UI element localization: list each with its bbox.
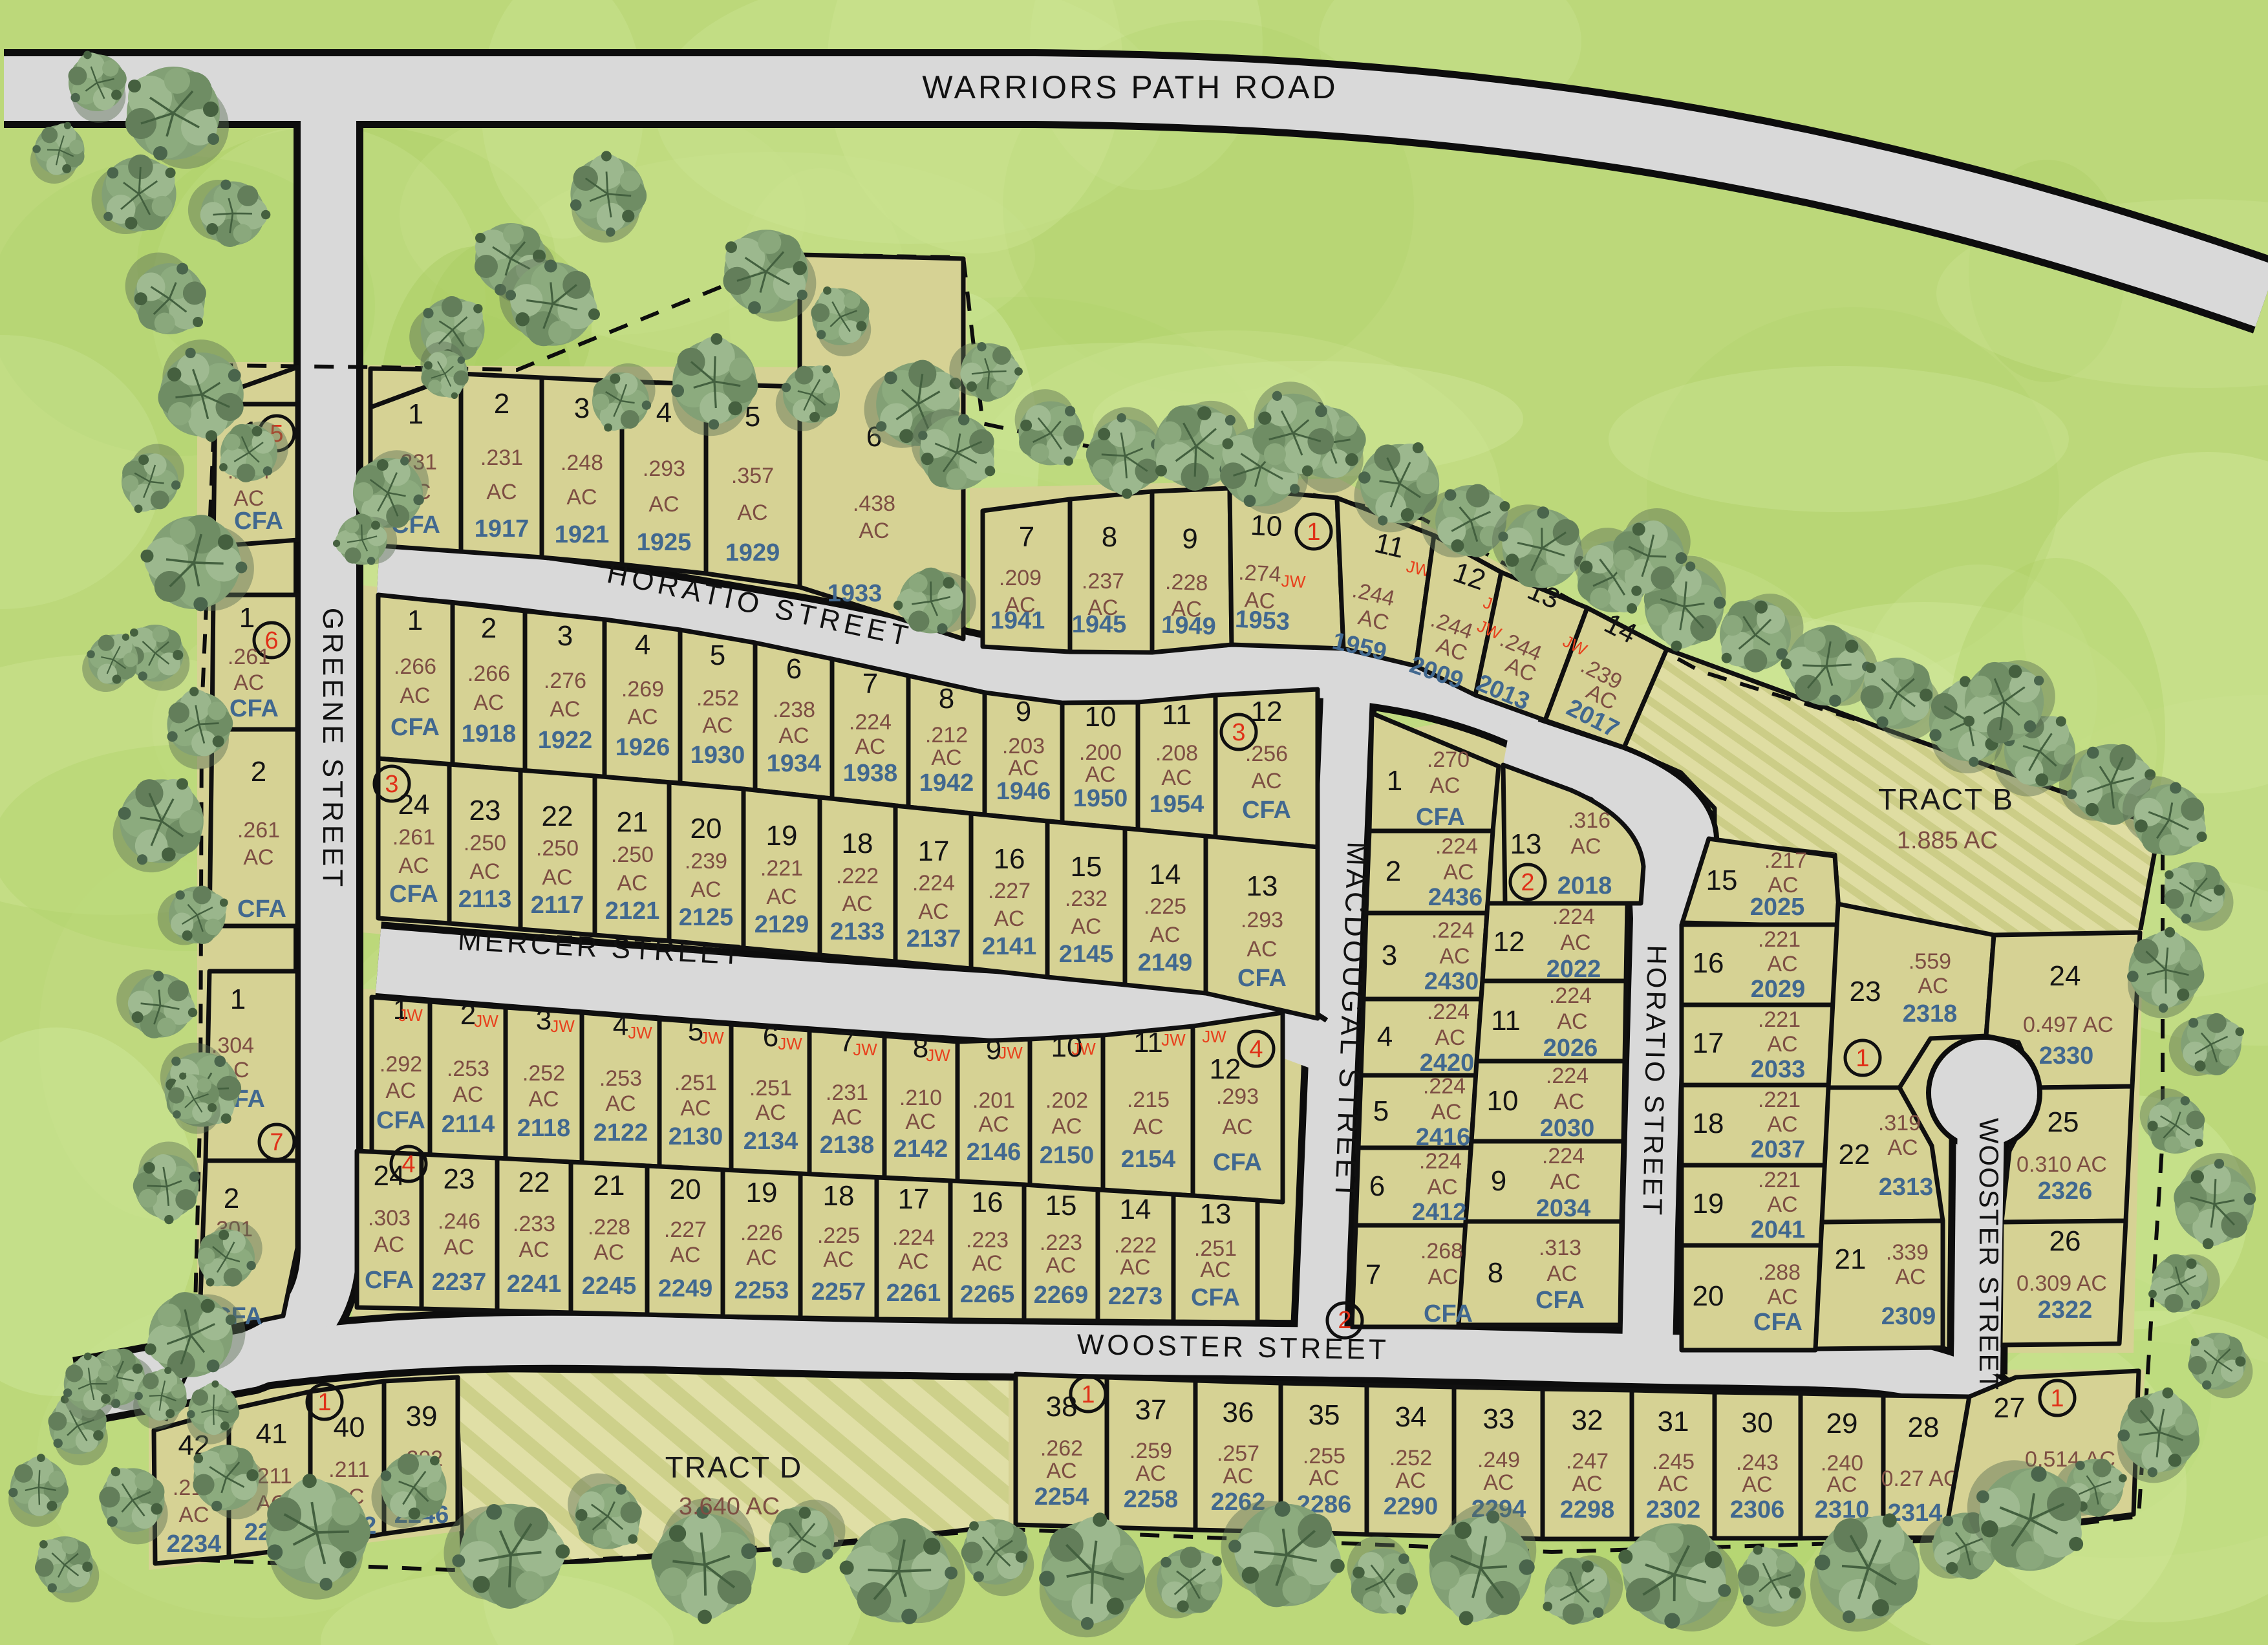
svg-text:9: 9	[1491, 1165, 1506, 1197]
svg-text:AC: AC	[627, 705, 658, 729]
svg-text:.270: .270	[1427, 747, 1470, 772]
svg-text:7: 7	[270, 1129, 283, 1156]
svg-text:.221: .221	[1758, 1168, 1801, 1192]
svg-text:AC: AC	[1546, 1262, 1577, 1286]
svg-text:AC: AC	[1429, 773, 1460, 798]
svg-text:WOOSTER STREET: WOOSTER STREET	[1974, 1118, 2004, 1391]
svg-text:AC: AC	[746, 1245, 776, 1270]
svg-text:2145: 2145	[1059, 941, 1114, 968]
svg-text:15: 15	[1045, 1190, 1077, 1221]
svg-text:0.497 AC: 0.497 AC	[2023, 1013, 2113, 1037]
svg-text:AC: AC	[702, 713, 733, 738]
svg-text:AC: AC	[1133, 1115, 1163, 1139]
svg-text:.237: .237	[1082, 569, 1124, 594]
svg-text:AC: AC	[1431, 1100, 1461, 1124]
svg-text:1925: 1925	[637, 529, 692, 556]
svg-text:AC: AC	[617, 871, 647, 896]
svg-text:7: 7	[1365, 1259, 1381, 1291]
svg-text:22: 22	[1839, 1139, 1870, 1170]
svg-text:1933: 1933	[828, 580, 883, 607]
svg-text:27: 27	[1994, 1392, 2026, 1424]
svg-text:11: 11	[1133, 1027, 1163, 1059]
svg-text:38: 38	[1046, 1391, 1078, 1423]
svg-text:.266: .266	[467, 661, 510, 686]
svg-text:1929: 1929	[725, 539, 780, 566]
svg-text:AC: AC	[1554, 1090, 1584, 1114]
svg-text:0.310 AC: 0.310 AC	[2017, 1152, 2107, 1177]
svg-text:AC: AC	[1046, 1459, 1076, 1483]
svg-text:2: 2	[224, 1183, 239, 1214]
svg-text:13: 13	[1510, 828, 1542, 860]
svg-text:4: 4	[401, 1151, 415, 1178]
svg-text:.276: .276	[544, 669, 586, 693]
svg-text:29: 29	[1826, 1408, 1858, 1439]
svg-text:AC: AC	[1309, 1466, 1339, 1490]
svg-text:.268: .268	[1420, 1239, 1463, 1263]
svg-text:.224: .224	[892, 1225, 935, 1250]
svg-text:2273: 2273	[1108, 1283, 1163, 1310]
svg-text:2: 2	[251, 756, 266, 788]
svg-text:2142: 2142	[893, 1135, 948, 1163]
svg-text:2134: 2134	[744, 1128, 798, 1155]
svg-text:AC: AC	[1428, 1265, 1458, 1289]
svg-text:AC: AC	[1427, 1175, 1457, 1199]
svg-text:JW: JW	[1071, 1039, 1096, 1059]
svg-text:AC: AC	[1150, 923, 1180, 947]
svg-text:13: 13	[1246, 870, 1278, 902]
svg-text:AC: AC	[994, 907, 1024, 931]
svg-text:CFA: CFA	[1242, 797, 1291, 824]
svg-text:2253: 2253	[734, 1277, 789, 1304]
svg-text:16: 16	[972, 1187, 1003, 1218]
svg-text:2306: 2306	[1730, 1496, 1785, 1523]
svg-text:2130: 2130	[669, 1123, 723, 1150]
svg-text:2420: 2420	[1420, 1049, 1475, 1077]
svg-text:.224: .224	[849, 710, 892, 735]
svg-text:AC: AC	[1395, 1468, 1426, 1493]
svg-text:2430: 2430	[1424, 968, 1479, 995]
svg-text:.250: .250	[536, 836, 579, 861]
svg-text:AC: AC	[978, 1112, 1009, 1137]
svg-text:.224: .224	[1435, 834, 1478, 859]
svg-text:2125: 2125	[679, 904, 734, 931]
svg-text:12: 12	[1251, 696, 1283, 727]
svg-text:2114: 2114	[442, 1111, 495, 1138]
svg-text:2117: 2117	[531, 892, 584, 919]
svg-text:.246: .246	[438, 1209, 480, 1234]
svg-text:CFA: CFA	[234, 508, 283, 535]
svg-text:JW: JW	[474, 1011, 498, 1031]
svg-text:AC: AC	[931, 746, 961, 770]
svg-text:.233: .233	[513, 1212, 555, 1236]
svg-text:HORATIO STREET: HORATIO STREET	[1637, 945, 1672, 1218]
svg-text:37: 37	[1135, 1394, 1167, 1426]
svg-text:AC: AC	[918, 899, 948, 924]
svg-text:2: 2	[494, 388, 509, 420]
svg-text:CFA: CFA	[390, 714, 440, 741]
svg-text:.224: .224	[1431, 918, 1474, 943]
svg-text:2141: 2141	[982, 933, 1037, 960]
svg-text:AC: AC	[1918, 974, 1948, 998]
svg-text:AC: AC	[778, 724, 809, 748]
svg-text:2122: 2122	[594, 1119, 648, 1146]
svg-text:3: 3	[385, 771, 398, 798]
svg-text:11: 11	[1162, 699, 1192, 731]
svg-text:CFA: CFA	[1753, 1309, 1803, 1336]
svg-text:.208: .208	[1155, 741, 1198, 766]
svg-text:JW: JW	[1202, 1027, 1226, 1046]
svg-text:26: 26	[2049, 1225, 2081, 1257]
svg-text:.225: .225	[1144, 894, 1186, 919]
svg-text:4: 4	[1377, 1021, 1393, 1053]
svg-text:.228: .228	[588, 1215, 630, 1240]
svg-text:AC: AC	[444, 1235, 474, 1260]
svg-text:AC: AC	[1767, 1112, 1797, 1137]
svg-text:12: 12	[1493, 926, 1525, 958]
svg-text:19: 19	[746, 1177, 778, 1209]
svg-text:16: 16	[994, 843, 1025, 875]
svg-text:AC: AC	[670, 1243, 700, 1267]
svg-text:9: 9	[1181, 523, 1198, 555]
svg-text:CFA: CFA	[1535, 1287, 1585, 1314]
svg-text:CFA: CFA	[1191, 1284, 1240, 1311]
svg-text:AC: AC	[755, 1101, 786, 1125]
svg-text:AC: AC	[1767, 1032, 1797, 1057]
svg-text:1949: 1949	[1161, 612, 1216, 641]
svg-text:2: 2	[1521, 869, 1534, 896]
svg-text:AC: AC	[374, 1232, 404, 1257]
svg-text:AC: AC	[1120, 1255, 1150, 1280]
svg-text:3: 3	[1232, 719, 1245, 746]
svg-text:.200: .200	[1079, 740, 1122, 765]
svg-text:15: 15	[1706, 865, 1738, 896]
svg-text:2041: 2041	[1751, 1216, 1806, 1243]
svg-text:CFA: CFA	[1424, 1300, 1473, 1328]
svg-text:23: 23	[1850, 976, 1881, 1007]
svg-text:3: 3	[1382, 940, 1397, 971]
svg-text:.249: .249	[1477, 1448, 1520, 1472]
svg-text:AC: AC	[469, 859, 500, 884]
svg-text:4: 4	[635, 629, 650, 661]
svg-text:34: 34	[1395, 1401, 1427, 1433]
svg-text:JW: JW	[1161, 1030, 1186, 1049]
svg-text:AC: AC	[831, 1105, 862, 1130]
svg-text:AC: AC	[905, 1110, 936, 1134]
svg-text:.223: .223	[966, 1228, 1009, 1253]
svg-text:.203: .203	[1002, 734, 1045, 758]
svg-text:2121: 2121	[605, 898, 660, 925]
svg-text:2412: 2412	[1412, 1199, 1467, 1226]
svg-text:1: 1	[230, 984, 246, 1015]
svg-text:2150: 2150	[1040, 1142, 1095, 1169]
svg-text:AC: AC	[1895, 1265, 1925, 1289]
svg-text:.231: .231	[480, 446, 523, 470]
svg-text:24: 24	[374, 1160, 405, 1192]
svg-text:AC: AC	[550, 697, 580, 722]
svg-text:AC: AC	[486, 480, 517, 504]
svg-text:.262: .262	[1040, 1436, 1083, 1461]
svg-text:8: 8	[1488, 1257, 1503, 1289]
svg-text:AC: AC	[690, 877, 721, 902]
svg-text:.292: .292	[380, 1052, 422, 1077]
svg-text:AC: AC	[542, 865, 572, 890]
svg-text:CFA: CFA	[389, 881, 438, 908]
svg-text:2018: 2018	[1557, 872, 1612, 899]
svg-text:1: 1	[239, 602, 255, 634]
svg-text:.357: .357	[731, 464, 774, 488]
svg-text:AC: AC	[1161, 766, 1192, 790]
svg-text:18: 18	[842, 828, 873, 859]
svg-text:17: 17	[1693, 1027, 1724, 1059]
svg-text:2269: 2269	[1034, 1282, 1089, 1309]
svg-text:2034: 2034	[1536, 1195, 1591, 1222]
svg-text:.231: .231	[826, 1081, 868, 1105]
svg-text:21: 21	[594, 1170, 625, 1201]
svg-text:CFA: CFA	[376, 1107, 425, 1134]
svg-text:GREENE STREET: GREENE STREET	[317, 608, 348, 890]
svg-text:.227: .227	[664, 1218, 707, 1242]
svg-text:32: 32	[1572, 1404, 1603, 1436]
svg-text:1: 1	[317, 1389, 331, 1416]
svg-text:2129: 2129	[754, 911, 809, 938]
svg-text:.250: .250	[611, 843, 654, 867]
svg-text:AC: AC	[566, 485, 597, 510]
svg-text:.221: .221	[760, 856, 803, 881]
svg-text:.226: .226	[740, 1221, 783, 1245]
svg-text:AC: AC	[1051, 1114, 1082, 1139]
svg-text:24: 24	[2049, 960, 2081, 992]
svg-text:.221: .221	[1758, 927, 1801, 952]
svg-text:AC: AC	[243, 845, 273, 870]
svg-text:10: 10	[1085, 701, 1117, 733]
svg-text:.223: .223	[1040, 1231, 1082, 1255]
svg-text:.313: .313	[1539, 1236, 1581, 1260]
svg-text:AC: AC	[528, 1087, 559, 1112]
svg-text:AC: AC	[855, 735, 885, 759]
svg-text:2302: 2302	[1646, 1496, 1701, 1523]
svg-text:1918: 1918	[462, 720, 517, 747]
svg-text:AC: AC	[1135, 1461, 1166, 1486]
svg-text:CFA: CFA	[1237, 965, 1287, 992]
svg-text:AC: AC	[1572, 1472, 1602, 1496]
svg-text:3: 3	[557, 620, 573, 652]
svg-text:4: 4	[1249, 1036, 1263, 1063]
svg-text:AC: AC	[1246, 937, 1277, 962]
svg-text:2265: 2265	[960, 1281, 1015, 1308]
svg-text:AC: AC	[1071, 914, 1101, 939]
svg-text:.274: .274	[1238, 560, 1282, 586]
svg-text:7: 7	[862, 668, 878, 700]
svg-text:AC: AC	[859, 519, 889, 543]
svg-text:10: 10	[1250, 510, 1283, 543]
svg-text:AC: AC	[1826, 1472, 1857, 1497]
svg-text:2313: 2313	[1879, 1174, 1934, 1201]
svg-text:2113: 2113	[458, 886, 511, 913]
svg-text:17: 17	[898, 1183, 930, 1215]
svg-text:.224: .224	[1423, 1074, 1466, 1099]
svg-text:2118: 2118	[517, 1115, 570, 1142]
svg-text:TRACT D: TRACT D	[665, 1450, 803, 1484]
svg-text:21: 21	[617, 806, 648, 838]
svg-text:1946: 1946	[996, 778, 1051, 805]
svg-text:.201: .201	[972, 1088, 1015, 1113]
svg-text:2309: 2309	[1881, 1303, 1936, 1330]
svg-text:2258: 2258	[1124, 1486, 1179, 1513]
svg-text:.228: .228	[1165, 570, 1208, 596]
svg-text:22: 22	[519, 1167, 550, 1198]
svg-text:JW: JW	[398, 1005, 423, 1025]
svg-text:2029: 2029	[1751, 976, 1806, 1003]
svg-text:2137: 2137	[906, 925, 961, 952]
svg-text:1921: 1921	[555, 521, 610, 548]
svg-text:2245: 2245	[582, 1273, 637, 1300]
svg-text:AC: AC	[453, 1082, 483, 1107]
svg-text:2298: 2298	[1560, 1496, 1615, 1523]
svg-text:1.885 AC: 1.885 AC	[1897, 827, 1998, 854]
svg-text:41: 41	[256, 1418, 288, 1450]
svg-text:.251: .251	[674, 1071, 717, 1095]
svg-text:.293: .293	[1241, 908, 1283, 932]
svg-text:AC: AC	[766, 885, 797, 909]
svg-text:2133: 2133	[830, 918, 885, 945]
svg-text:.251: .251	[749, 1076, 792, 1101]
svg-text:JW: JW	[853, 1040, 877, 1059]
svg-text:2149: 2149	[1138, 949, 1193, 976]
svg-text:AC: AC	[737, 500, 767, 525]
svg-text:.217: .217	[1764, 848, 1807, 873]
svg-text:.252: .252	[1389, 1446, 1432, 1470]
svg-text:20: 20	[670, 1174, 701, 1205]
svg-text:25: 25	[2048, 1106, 2079, 1138]
svg-text:JW: JW	[628, 1023, 652, 1042]
svg-text:15: 15	[1071, 851, 1102, 883]
svg-text:1: 1	[1387, 765, 1402, 797]
svg-text:.438: .438	[853, 491, 895, 516]
svg-text:.224: .224	[912, 871, 955, 896]
svg-text:WOOSTER STREET: WOOSTER STREET	[1076, 1329, 1389, 1366]
svg-text:.257: .257	[1217, 1441, 1259, 1466]
svg-text:8: 8	[1102, 521, 1117, 553]
svg-text:AC: AC	[1742, 1472, 1772, 1497]
svg-text:.250: .250	[464, 831, 506, 855]
svg-text:2: 2	[481, 612, 497, 644]
svg-text:7: 7	[1019, 521, 1034, 553]
svg-text:AC: AC	[1439, 944, 1470, 969]
svg-text:28: 28	[1908, 1412, 1940, 1443]
svg-text:AC: AC	[233, 671, 264, 695]
svg-text:4: 4	[613, 1010, 628, 1042]
svg-text:AC: AC	[1435, 1026, 1465, 1050]
svg-text:AC: AC	[1085, 762, 1115, 787]
svg-text:2330: 2330	[2039, 1042, 2094, 1070]
svg-text:.288: .288	[1758, 1260, 1801, 1285]
svg-text:.209: .209	[999, 566, 1042, 590]
svg-text:.252: .252	[522, 1061, 565, 1086]
svg-text:AC: AC	[473, 691, 504, 715]
svg-text:8: 8	[939, 683, 954, 715]
svg-text:21: 21	[1835, 1243, 1867, 1275]
svg-text:36: 36	[1223, 1397, 1254, 1428]
svg-text:.238: .238	[773, 698, 815, 722]
svg-text:AC: AC	[1557, 1009, 1587, 1034]
svg-text:20: 20	[1693, 1280, 1724, 1312]
svg-text:16: 16	[1693, 947, 1724, 979]
svg-text:6: 6	[1369, 1170, 1385, 1202]
svg-text:1: 1	[1307, 519, 1320, 546]
svg-text:.245: .245	[1652, 1450, 1695, 1474]
svg-text:AC: AC	[1658, 1472, 1688, 1496]
svg-text:2261: 2261	[886, 1280, 941, 1307]
svg-text:2026: 2026	[1543, 1035, 1598, 1062]
svg-text:20: 20	[690, 813, 722, 844]
svg-text:1: 1	[407, 605, 423, 636]
svg-text:.211: .211	[328, 1457, 370, 1482]
svg-text:2416: 2416	[1416, 1124, 1471, 1151]
svg-text:AC: AC	[1560, 930, 1590, 955]
svg-text:1926: 1926	[615, 734, 670, 761]
svg-text:.293: .293	[643, 457, 685, 481]
svg-text:.225: .225	[817, 1223, 860, 1248]
svg-text:JW: JW	[778, 1034, 802, 1053]
svg-text:.221: .221	[1758, 1007, 1801, 1032]
svg-text:JW: JW	[998, 1043, 1023, 1062]
svg-text:.253: .253	[447, 1057, 489, 1081]
svg-text:.253: .253	[599, 1066, 642, 1091]
svg-text:AC: AC	[1767, 1285, 1797, 1309]
svg-text:.266: .266	[394, 654, 436, 679]
svg-text:AC: AC	[605, 1091, 636, 1116]
svg-text:24: 24	[398, 789, 430, 821]
svg-text:CFA: CFA	[365, 1267, 414, 1294]
svg-text:AC: AC	[898, 1249, 928, 1274]
svg-text:.319: .319	[1878, 1111, 1921, 1135]
svg-text:AC: AC	[680, 1096, 711, 1121]
svg-text:19: 19	[766, 820, 798, 852]
svg-text:AC: AC	[519, 1238, 549, 1262]
svg-text:0.309 AC: 0.309 AC	[2017, 1271, 2107, 1296]
svg-text:2037: 2037	[1751, 1136, 1806, 1163]
svg-text:1: 1	[2050, 1385, 2064, 1412]
svg-text:.303: .303	[368, 1206, 411, 1231]
svg-text:1: 1	[1856, 1045, 1869, 1072]
svg-text:6: 6	[763, 1021, 778, 1053]
svg-text:AC: AC	[1045, 1253, 1076, 1278]
svg-text:.212: .212	[925, 723, 968, 747]
svg-text:23: 23	[469, 795, 501, 826]
svg-text:10: 10	[1487, 1085, 1519, 1117]
svg-text:AC: AC	[1767, 952, 1797, 976]
svg-text:1922: 1922	[538, 727, 593, 754]
svg-text:9: 9	[1016, 696, 1031, 727]
svg-text:.222: .222	[1114, 1233, 1157, 1258]
svg-text:AC: AC	[842, 892, 872, 916]
svg-text:.316: .316	[1568, 808, 1610, 833]
svg-text:33: 33	[1483, 1403, 1515, 1435]
svg-text:2030: 2030	[1540, 1115, 1595, 1142]
svg-text:1945: 1945	[1072, 611, 1127, 638]
svg-text:AC: AC	[648, 492, 679, 517]
svg-text:30: 30	[1742, 1407, 1773, 1439]
svg-text:JW: JW	[700, 1028, 724, 1048]
svg-text:1953: 1953	[1234, 606, 1290, 636]
svg-text:2249: 2249	[658, 1275, 713, 1302]
svg-text:31: 31	[1658, 1406, 1689, 1437]
svg-text:JW: JW	[1281, 571, 1307, 592]
svg-text:.261: .261	[392, 825, 435, 850]
svg-text:.227: .227	[988, 879, 1031, 903]
svg-text:.247: .247	[1566, 1449, 1609, 1474]
svg-text:AC: AC	[400, 683, 430, 708]
